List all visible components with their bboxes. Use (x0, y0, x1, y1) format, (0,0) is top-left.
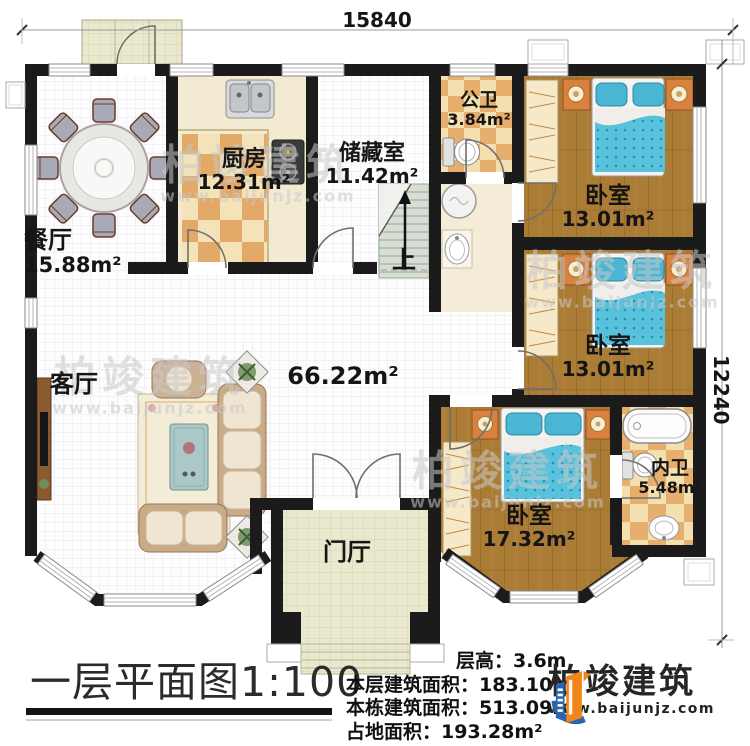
ensuite-bathtub (623, 409, 691, 443)
wardrobe-1 (526, 80, 558, 183)
room-label-kitchen: 厨房12.31m² (185, 148, 303, 193)
brand-logo: 柏竣建筑 www.baijunjz.com (542, 664, 715, 717)
dimension-right: 12240 (709, 310, 731, 470)
living-room-set (138, 351, 268, 558)
dining-table-set (35, 99, 173, 237)
back-porch (82, 20, 182, 64)
water-heater (442, 184, 476, 218)
room-label-bedroom2: 卧室13.01m² (545, 334, 671, 380)
room-label-living: 客厅 (50, 372, 120, 398)
plan-title: 一层平面图1:100 (30, 648, 363, 708)
room-label-public-bath: 公卫3.84m² (443, 90, 515, 128)
room-label-storage: 储藏室11.42m² (316, 142, 428, 187)
hall-washbasin (442, 230, 472, 268)
room-label-foyer: 门厅 (300, 540, 394, 566)
ensuite-washbasin (649, 516, 679, 540)
title-underline-thin (26, 719, 332, 721)
floorplan-canvas: 柏竣建筑www.baijunjz.com 柏竣建筑www.baijunjz.co… (0, 0, 750, 746)
title-underline (26, 708, 332, 715)
room-label-ensuite: 内卫5.48m² (634, 458, 706, 496)
tv-cabinet (37, 378, 51, 500)
stairs-up-label: 上 (382, 248, 426, 274)
kitchen-sink (226, 80, 274, 118)
room-label-bedroom1: 卧室13.01m² (545, 184, 671, 230)
room-label-bedroom3: 卧室17.32m² (462, 504, 596, 550)
dimension-top: 15840 (337, 10, 417, 32)
open-area-label: 66.22m² (268, 364, 418, 390)
room-label-dining: 餐厅15.88m² (24, 228, 134, 277)
